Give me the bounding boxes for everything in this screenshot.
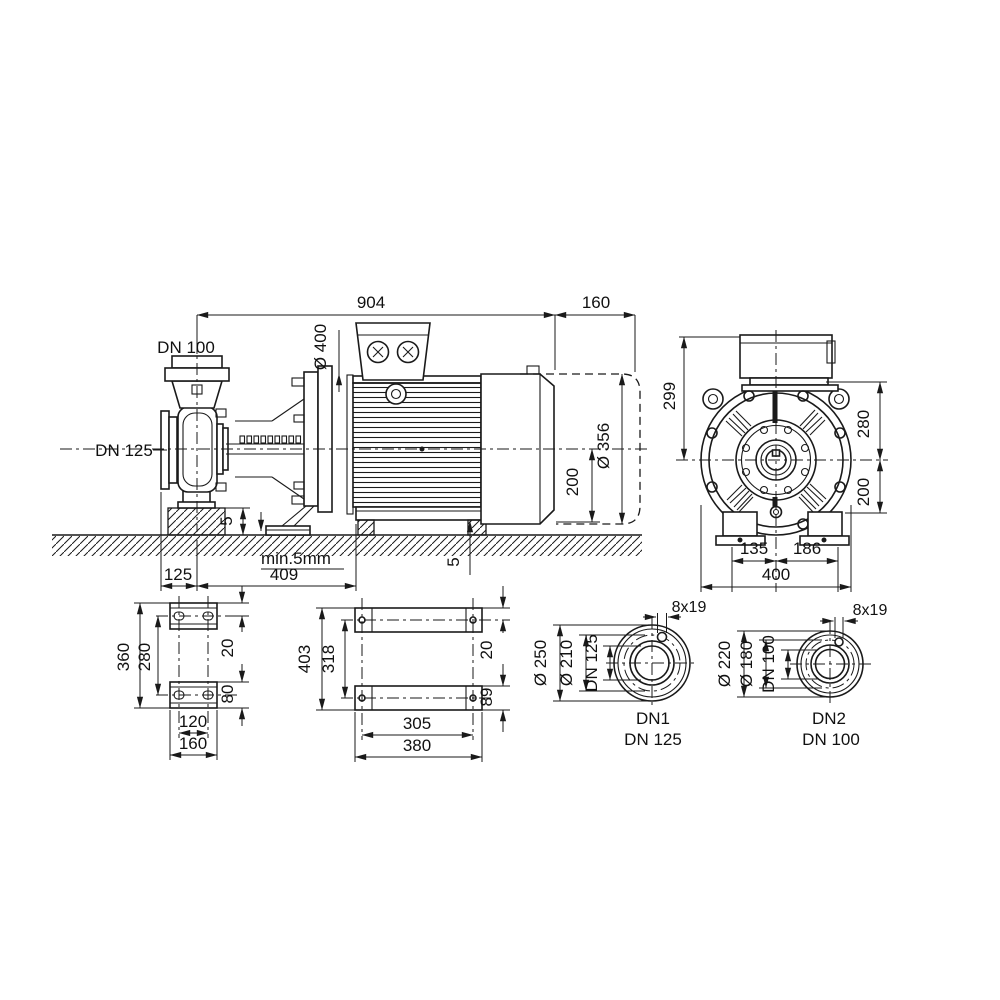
dim-axis-to-face: 409: [270, 565, 298, 584]
terminal-box: [356, 323, 430, 380]
dim-width: 380: [403, 736, 431, 755]
dim-bore: DN 100: [759, 635, 778, 693]
lifting-eye-icon: [386, 384, 406, 404]
dim-outer: Ø 220: [715, 641, 734, 687]
motor-fins: [353, 383, 481, 507]
dim-bolt-circle: Ø 180: [737, 641, 756, 687]
dim-lower: 200: [854, 478, 873, 506]
port-label: DN1: [636, 709, 670, 728]
dim-pedestal: 5: [217, 516, 236, 525]
dim-box-top: 299: [660, 382, 679, 410]
dim-width: 400: [762, 565, 790, 584]
dim-overall: 904: [357, 293, 385, 312]
dim-flange-dia: Ø 400: [311, 324, 330, 370]
dim-hole-offset: 20: [477, 641, 496, 660]
dim-width: 160: [179, 734, 207, 753]
port-size: DN 125: [624, 730, 682, 749]
port-label: DN2: [812, 709, 846, 728]
dim-hole-spacing: 120: [179, 712, 207, 731]
motor-shim: [358, 520, 374, 535]
bolt-note: 8x19: [853, 602, 888, 619]
bolt-hole: [835, 638, 843, 646]
dim-foot-right: 186: [793, 539, 821, 558]
motor-foot-bar: [356, 507, 486, 520]
bolt-note: 8x19: [672, 599, 707, 616]
dim-length: 360: [114, 643, 133, 671]
dim-upper: 280: [854, 410, 873, 438]
dim-pad: 80: [218, 685, 237, 704]
dim-foot-left: 135: [740, 539, 768, 558]
lifting-ear-icon: [829, 389, 849, 409]
label-discharge: DN 100: [157, 338, 215, 357]
terminal-box-front: [740, 335, 835, 385]
dim-bolt-circle: Ø 210: [557, 640, 576, 686]
dim-hole-spacing: 305: [403, 714, 431, 733]
dim-rear-space: 160: [582, 293, 610, 312]
dim-axis-height: 200: [563, 468, 582, 496]
motor-body: [353, 366, 554, 535]
dim-hole-span: 280: [135, 643, 154, 671]
lifting-ear-icon: [703, 389, 723, 409]
drawing-canvas: 904 160 DN 100 DN 125 Ø 400 Ø 356 200 5 …: [0, 0, 1000, 1000]
dim-hole-span: 318: [319, 645, 338, 673]
pump-dimensional-drawing: 904 160 DN 100 DN 125 Ø 400 Ø 356 200 5 …: [0, 0, 1000, 1000]
ground-hatch: [52, 536, 642, 556]
dim-suction-offset: 125: [164, 565, 192, 584]
label-suction: DN 125: [95, 441, 153, 460]
dim-shim: 5: [444, 557, 463, 566]
dim-length: 403: [295, 645, 314, 673]
dim-pad: 89: [477, 688, 496, 707]
port-size: DN 100: [802, 730, 860, 749]
dim-bore: DN 125: [582, 634, 601, 692]
dim-outer: Ø 250: [531, 640, 550, 686]
bolt-hole: [658, 633, 667, 642]
dim-motor-dia: Ø 356: [594, 423, 613, 469]
dim-slot-offset: 20: [218, 639, 237, 658]
